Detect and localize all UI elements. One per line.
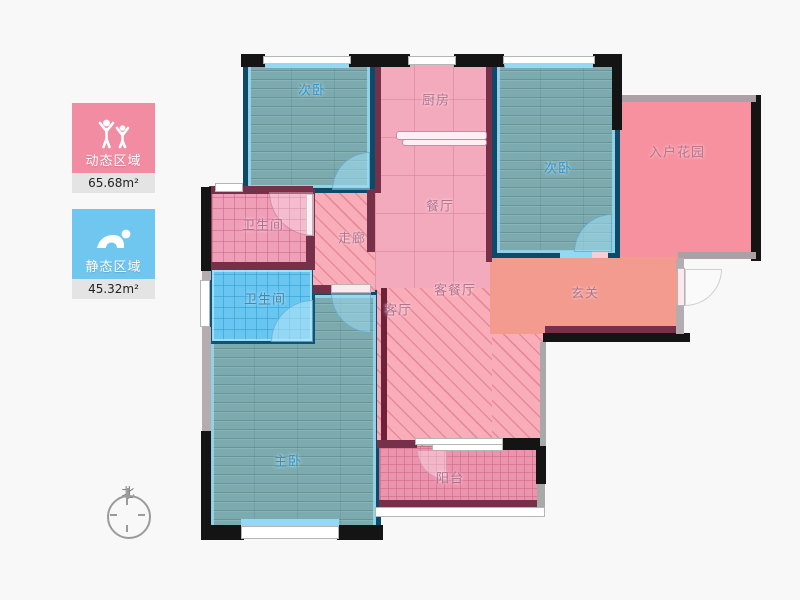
wall [377,440,417,448]
outer-wall [676,304,684,334]
outer-wall [622,95,756,102]
person-sleeping-icon [92,226,136,256]
window [200,280,210,327]
wall [209,262,315,270]
wall [375,57,381,193]
label-bathroom-lower: 卫生间 [244,289,286,308]
static-area-label: 静态区域 [85,256,141,275]
floorplan-viewer: { "legend": { "dynamic": {"label": "动态区域… [0,0,800,600]
label-living: 客厅 [384,300,412,319]
dynamic-area-value: 65.68m² [72,173,155,193]
outer-wall [540,342,546,446]
people-active-icon [94,118,134,150]
outer-wall [678,252,756,259]
label-kitchen: 厨房 [422,90,450,109]
room-entry-garden[interactable] [620,97,756,257]
static-area-value: 45.32m² [72,279,155,299]
outer-wall [201,431,211,529]
outer-wall [543,333,690,342]
label-bedroom-top-left: 次卧 [298,80,326,99]
dynamic-area-label: 动态区域 [85,150,141,169]
outer-wall [337,525,383,540]
outer-wall [612,54,622,130]
label-living-dining: 客餐厅 [434,280,476,299]
wall [313,285,333,294]
window-band [560,251,592,258]
label-entry-garden: 入户花园 [649,142,705,161]
outer-wall [454,54,504,67]
kitchen-counter [402,139,487,146]
window [408,56,456,65]
static-area-badge[interactable]: 静态区域 [72,209,155,279]
label-balcony: 阳台 [436,468,464,487]
window [215,183,243,192]
entrance-door-leaf [677,268,685,306]
wall [486,59,492,262]
outer-wall [201,187,211,271]
compass-circle-icon [107,495,151,539]
window [241,526,339,539]
label-bedroom-top-right: 次卧 [544,158,572,177]
wall [367,189,375,252]
label-bathroom-upper: 卫生间 [242,215,284,234]
label-foyer: 玄关 [571,283,599,302]
door-leaf [331,284,371,293]
outer-wall [536,444,546,484]
outer-wall [751,95,761,261]
dynamic-area-badge[interactable]: 动态区域 [72,103,155,173]
outer-wall [202,271,211,280]
outer-wall [241,54,265,67]
window-band [241,519,339,526]
outer-wall [202,327,211,431]
outer-wall [501,438,545,450]
outer-wall [349,54,410,67]
entrance-door-arc [685,269,722,306]
wall [379,500,539,507]
label-master-bedroom: 主卧 [274,451,302,470]
label-corridor: 走廊 [338,228,366,247]
window-band [505,63,593,68]
window [592,251,608,258]
legend: 动态区域 65.68m² 静态区域 45.32m² [72,103,155,299]
window-band [265,63,349,68]
label-dining: 餐厅 [426,196,454,215]
balcony-railing [375,507,545,517]
room-living-right[interactable] [492,334,545,448]
